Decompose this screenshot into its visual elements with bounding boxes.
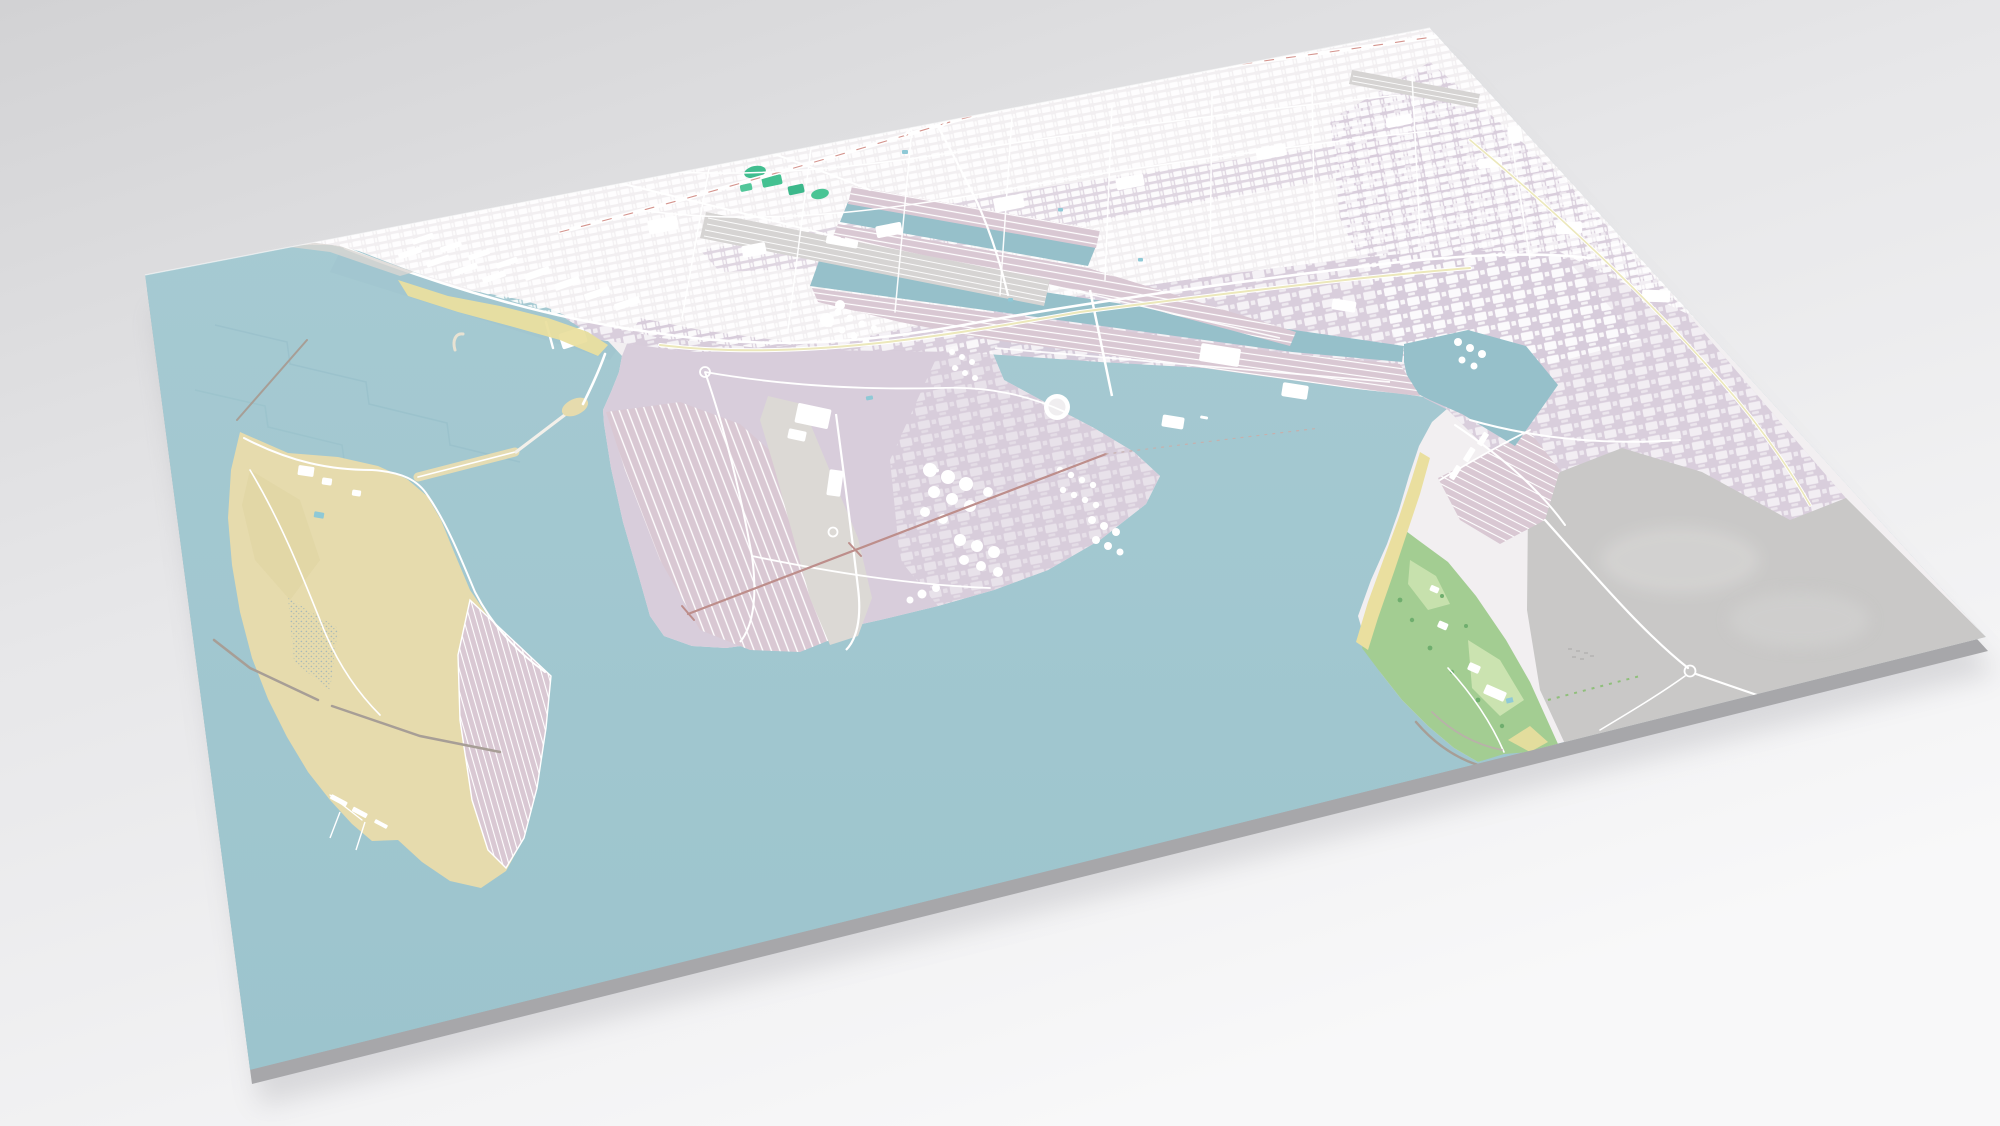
- map-canvas[interactable]: [0, 0, 2000, 1126]
- field-light-patch: [1600, 526, 1760, 594]
- map-render-stage: [0, 0, 2000, 1126]
- sphere-tank: [835, 300, 845, 310]
- field-light-patch: [1730, 592, 1870, 648]
- sphere-tank: [820, 313, 834, 327]
